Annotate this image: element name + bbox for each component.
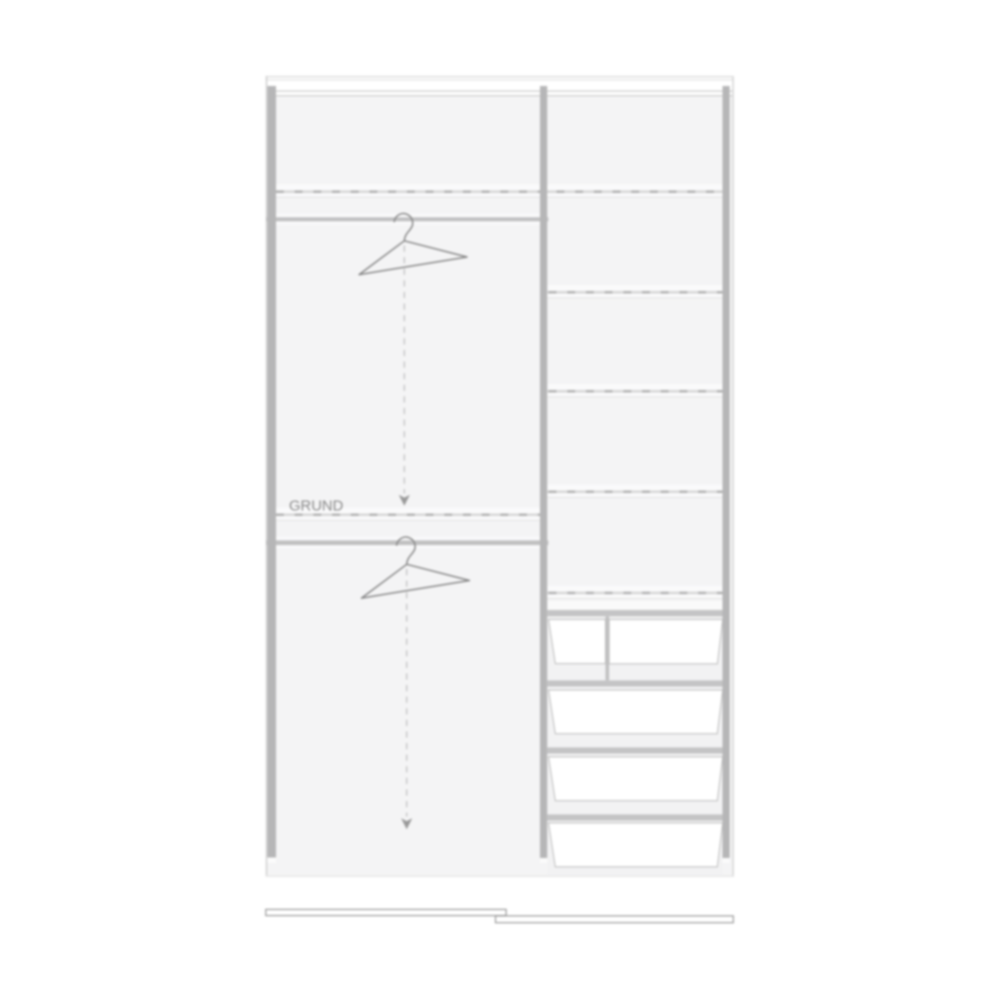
svg-text:GRUND: GRUND	[289, 499, 343, 515]
